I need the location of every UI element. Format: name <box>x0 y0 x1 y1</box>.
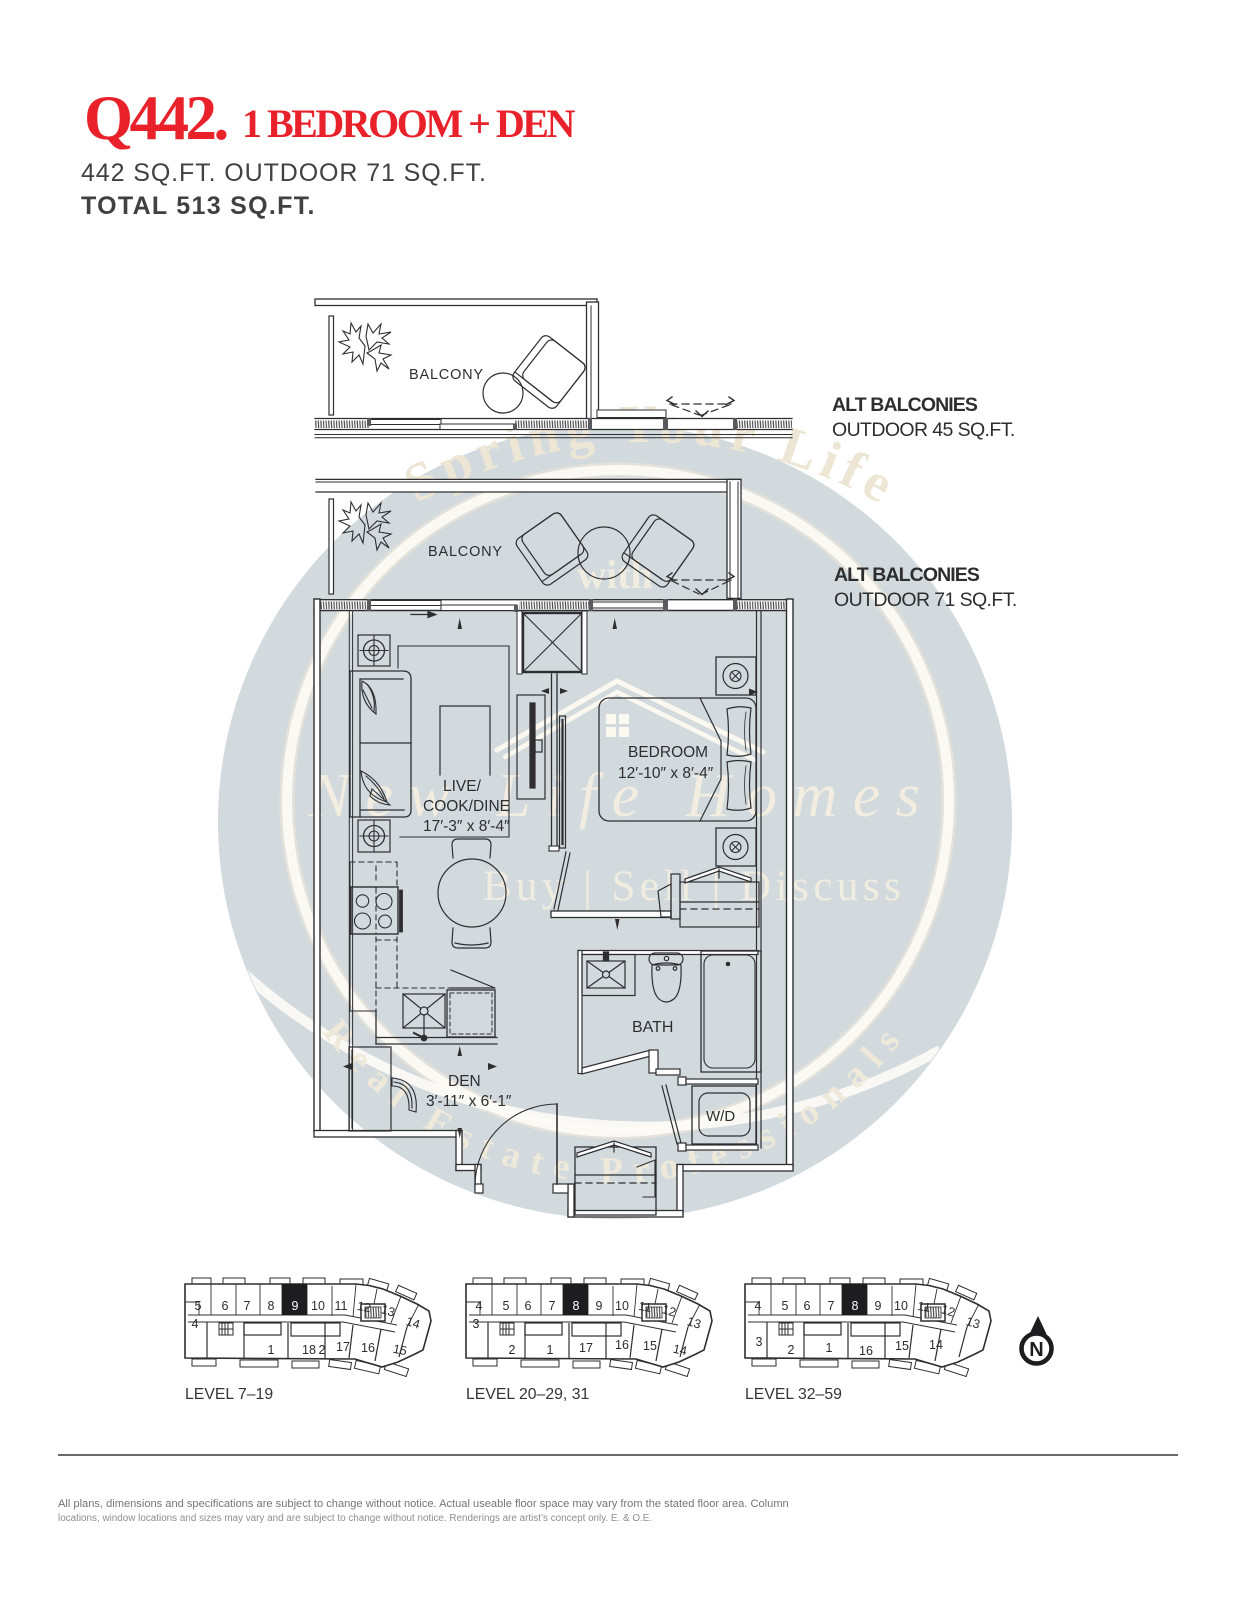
svg-text:15: 15 <box>392 1342 409 1359</box>
svg-text:5: 5 <box>782 1299 789 1313</box>
svg-text:15: 15 <box>643 1339 657 1353</box>
svg-text:17: 17 <box>579 1341 593 1355</box>
svg-text:ALT BALCONIES: ALT BALCONIES <box>834 564 980 586</box>
svg-text:18: 18 <box>302 1343 316 1357</box>
svg-text:9: 9 <box>292 1299 299 1313</box>
svg-text:N: N <box>1029 1339 1043 1361</box>
svg-text:9: 9 <box>596 1299 603 1313</box>
svg-text:4: 4 <box>192 1317 199 1331</box>
svg-text:10: 10 <box>894 1299 908 1313</box>
svg-text:16: 16 <box>859 1344 873 1358</box>
svg-text:BALCONY: BALCONY <box>428 544 503 560</box>
svg-text:Buy | Sell | Discuss: Buy | Sell | Discuss <box>483 863 906 910</box>
svg-text:BATH: BATH <box>632 1019 673 1036</box>
svg-text:7: 7 <box>244 1299 251 1313</box>
svg-text:7: 7 <box>549 1299 556 1313</box>
svg-text:LEVEL 20–29, 31: LEVEL 20–29, 31 <box>466 1386 589 1403</box>
svg-text:8: 8 <box>268 1299 275 1313</box>
svg-text:1: 1 <box>268 1343 275 1357</box>
svg-text:3: 3 <box>756 1335 763 1349</box>
svg-text:6: 6 <box>525 1299 532 1313</box>
svg-text:2: 2 <box>788 1343 795 1357</box>
svg-text:3: 3 <box>473 1317 480 1331</box>
svg-text:9: 9 <box>875 1299 882 1313</box>
svg-text:16: 16 <box>361 1341 375 1355</box>
svg-text:6: 6 <box>222 1299 229 1313</box>
svg-text:1: 1 <box>826 1341 833 1355</box>
svg-text:W/D: W/D <box>706 1108 735 1125</box>
svg-text:10: 10 <box>615 1299 629 1313</box>
svg-text:14: 14 <box>929 1338 943 1352</box>
svg-text:OUTDOOR 45 SQ.FT.: OUTDOOR 45 SQ.FT. <box>832 419 1015 441</box>
svg-text:11: 11 <box>335 1299 348 1313</box>
svg-text:4: 4 <box>476 1299 483 1313</box>
svg-text:1 BEDROOM + DEN: 1 BEDROOM + DEN <box>242 101 575 146</box>
svg-text:3′-11″ x 6′-1″: 3′-11″ x 6′-1″ <box>426 1093 512 1110</box>
svg-text:Q442.: Q442. <box>84 83 227 153</box>
svg-text:14: 14 <box>672 1342 689 1359</box>
svg-text:LIVE/: LIVE/ <box>443 778 482 795</box>
svg-text:442 SQ.FT. OUTDOOR 71 SQ.FT.: 442 SQ.FT. OUTDOOR 71 SQ.FT. <box>81 159 487 187</box>
svg-text:11: 11 <box>916 1299 931 1315</box>
svg-text:LEVEL 7–19: LEVEL 7–19 <box>185 1386 273 1403</box>
svg-text:COOK/DINE: COOK/DINE <box>423 798 510 815</box>
svg-text:LEVEL 32–59: LEVEL 32–59 <box>745 1386 842 1403</box>
svg-text:BEDROOM: BEDROOM <box>628 744 708 761</box>
svg-text:11: 11 <box>637 1299 652 1315</box>
svg-text:All plans, dimensions and spec: All plans, dimensions and specifications… <box>58 1498 789 1510</box>
svg-text:ALT BALCONIES: ALT BALCONIES <box>832 394 978 416</box>
svg-text:5: 5 <box>503 1299 510 1313</box>
svg-text:OUTDOOR 71 SQ.FT.: OUTDOOR 71 SQ.FT. <box>834 589 1017 611</box>
svg-text:17: 17 <box>336 1340 350 1354</box>
svg-text:12′-10″ x 8′-4″: 12′-10″ x 8′-4″ <box>618 765 714 782</box>
svg-text:2: 2 <box>319 1343 326 1357</box>
svg-text:DEN: DEN <box>448 1073 481 1090</box>
svg-text:16: 16 <box>615 1338 629 1352</box>
svg-text:17′-3″ x 8′-4″: 17′-3″ x 8′-4″ <box>423 818 510 835</box>
svg-text:12: 12 <box>356 1299 372 1315</box>
svg-text:BALCONY: BALCONY <box>409 367 484 383</box>
svg-text:10: 10 <box>311 1299 325 1313</box>
svg-text:8: 8 <box>852 1299 859 1313</box>
svg-text:7: 7 <box>828 1299 835 1313</box>
svg-text:4: 4 <box>755 1299 762 1313</box>
svg-text:TOTAL 513 SQ.FT.: TOTAL 513 SQ.FT. <box>81 192 316 220</box>
svg-text:8: 8 <box>573 1299 580 1313</box>
svg-text:locations, window locations an: locations, window locations and sizes ma… <box>58 1513 652 1524</box>
svg-text:6: 6 <box>804 1299 811 1313</box>
svg-text:2: 2 <box>509 1343 516 1357</box>
svg-text:1: 1 <box>547 1343 554 1357</box>
svg-text:5: 5 <box>195 1299 202 1313</box>
svg-text:15: 15 <box>895 1339 909 1353</box>
